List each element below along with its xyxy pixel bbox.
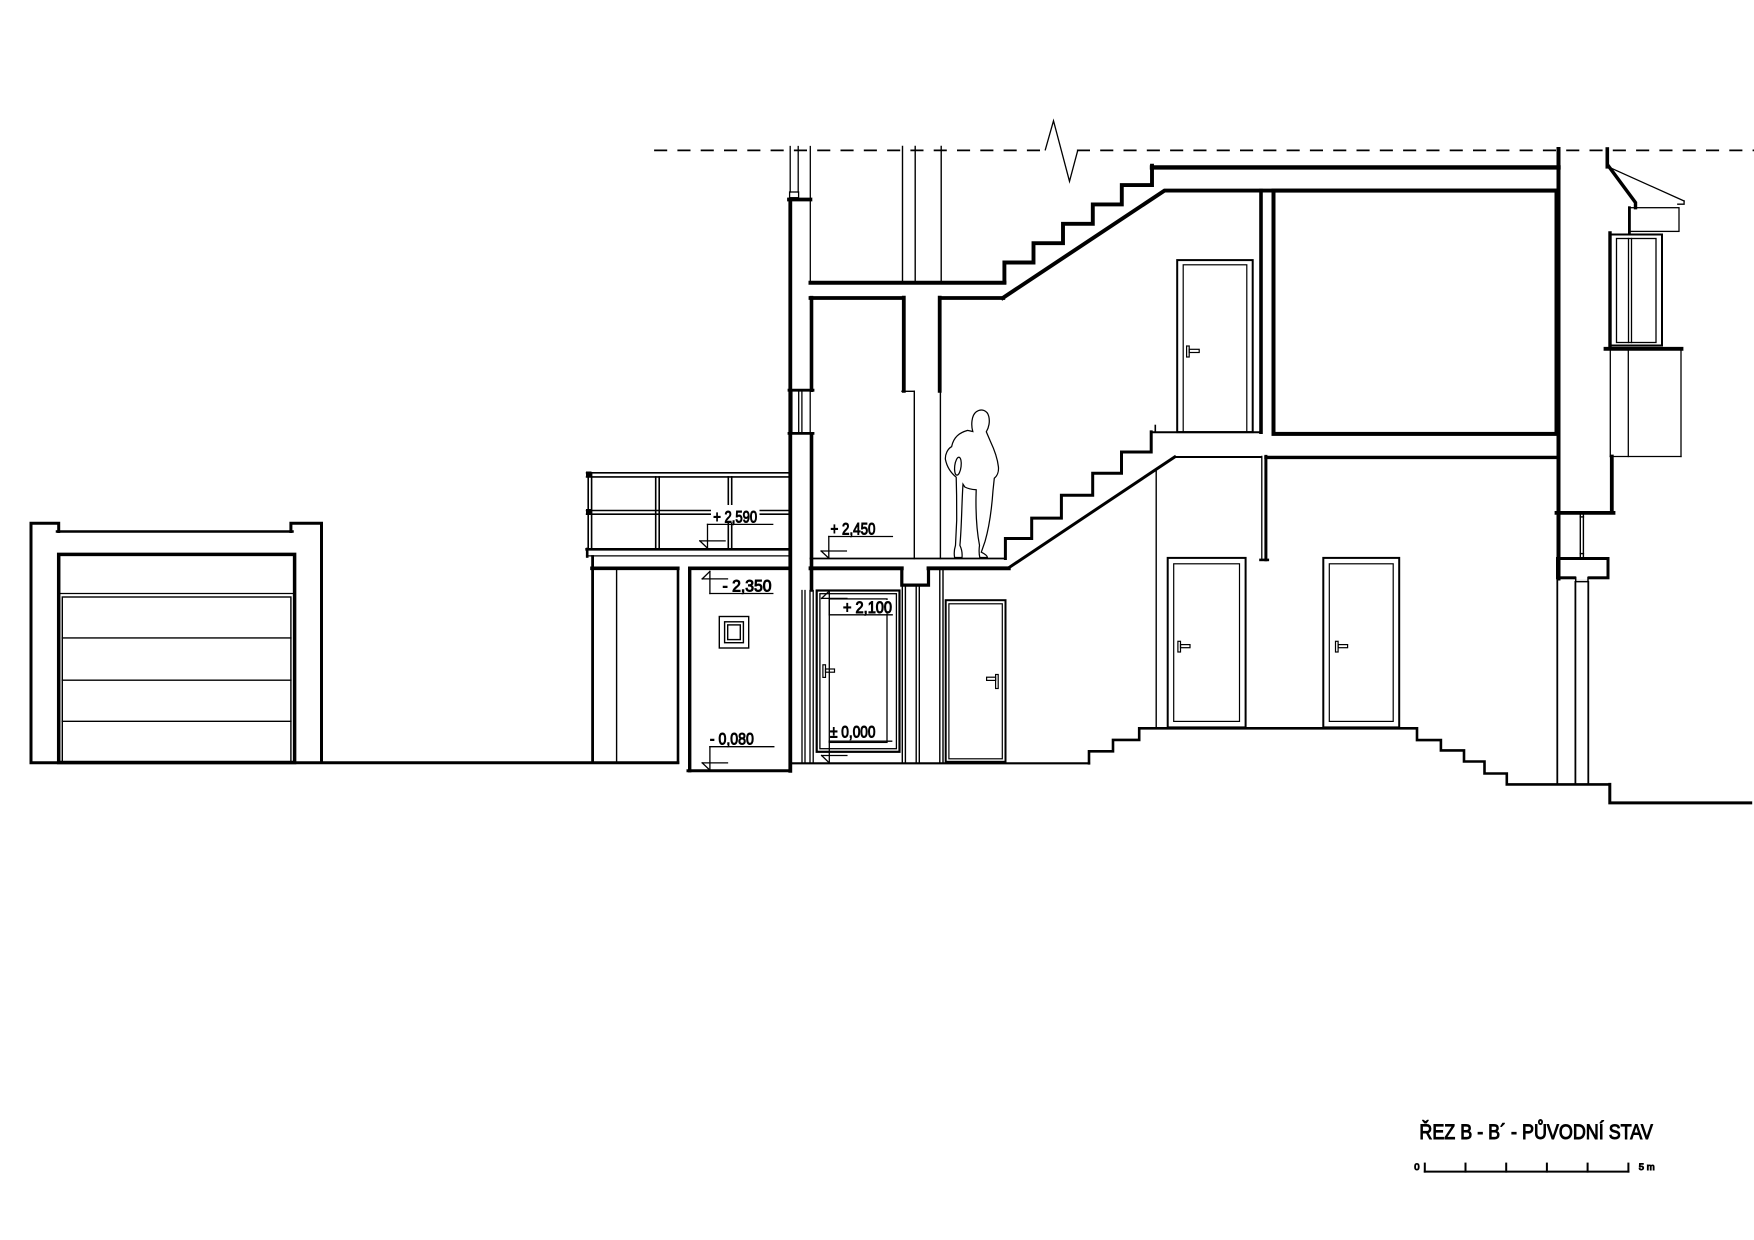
svg-text:- 0,080: - 0,080: [710, 730, 754, 749]
svg-text:+ 2,450: + 2,450: [831, 520, 876, 539]
svg-text:5 m: 5 m: [1639, 1162, 1655, 1173]
svg-text:± 0,000: ± 0,000: [830, 722, 876, 741]
svg-text:ŘEZ B - B´ - PŮVODNÍ STAV: ŘEZ B - B´ - PŮVODNÍ STAV: [1419, 1119, 1653, 1144]
svg-text:- 2,350: - 2,350: [723, 577, 772, 596]
svg-text:+ 2,590: + 2,590: [713, 507, 757, 526]
svg-text:+ 2,100: + 2,100: [843, 598, 892, 617]
svg-text:0: 0: [1414, 1162, 1419, 1173]
